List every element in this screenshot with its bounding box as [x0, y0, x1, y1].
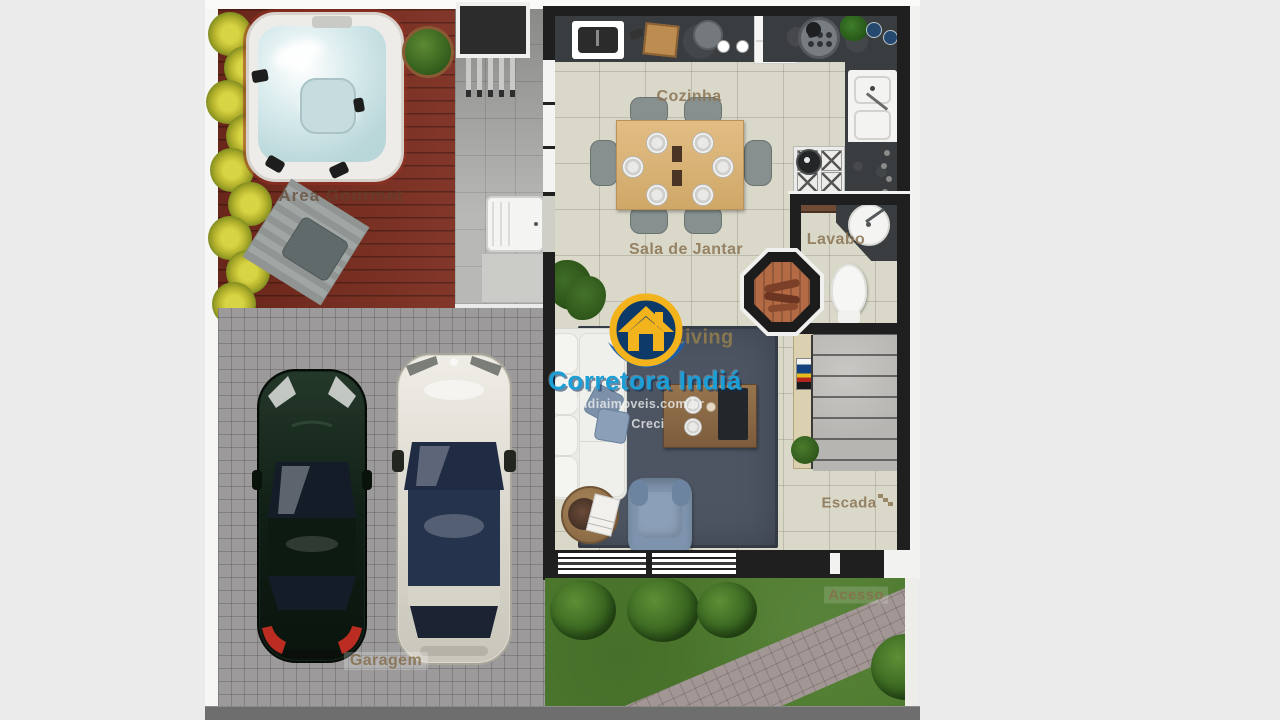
toilet-base — [838, 310, 860, 323]
toilet — [831, 264, 867, 316]
place-setting — [622, 156, 644, 178]
car-dark-svg — [252, 366, 372, 666]
pebble-decor — [884, 150, 890, 156]
table-runner-item — [672, 170, 682, 186]
window-left — [543, 60, 555, 192]
window-bottom — [652, 553, 736, 574]
car-dark — [252, 366, 372, 671]
armchair-wing — [630, 480, 648, 506]
watermark-website: indiaimoveis.com.br — [576, 397, 704, 411]
stove-burner — [797, 172, 818, 193]
floorplan-canvas: Área Gourmet — [0, 0, 1280, 720]
lavabo-label: Lavabo — [807, 231, 865, 249]
counter-plant — [840, 15, 868, 41]
place-setting — [646, 132, 668, 154]
counter-bowl — [866, 22, 882, 38]
decor-kettle — [806, 22, 821, 37]
lavabo-wall-top — [790, 194, 910, 205]
bush — [627, 578, 699, 642]
wall-right — [897, 6, 910, 580]
stove-pot-lid — [804, 157, 810, 163]
bush — [550, 580, 616, 640]
street-strip — [205, 706, 920, 720]
place-setting — [692, 184, 714, 206]
grill — [456, 2, 530, 58]
lavabo-drain — [866, 222, 871, 227]
bush — [697, 582, 757, 638]
patio-door-panel — [492, 202, 512, 246]
stair-plant — [791, 436, 819, 464]
hot-tub-seat — [300, 78, 356, 134]
potted-plant — [402, 26, 454, 78]
kitchen-label: Cozinha — [656, 88, 721, 106]
decor-plate-rack — [798, 17, 840, 59]
window-bottom — [558, 553, 646, 574]
place-setting — [712, 156, 734, 178]
place-setting — [646, 184, 668, 206]
dining-label: Sala de Jantar — [629, 241, 743, 259]
stove-burner — [821, 150, 842, 171]
wall-right-trim — [910, 6, 920, 580]
wall-art — [796, 358, 812, 390]
dining-chair — [630, 206, 668, 234]
sofa-pillow — [593, 407, 630, 444]
logo-house-icon — [600, 290, 692, 374]
door-frame-bottom — [830, 553, 840, 574]
watermark-license: Creci — [631, 417, 664, 431]
gourmet-label: Área Gourmet — [278, 186, 403, 206]
garage-label: Garagem — [344, 652, 428, 670]
staircase — [813, 333, 897, 471]
car-light — [392, 350, 516, 673]
door-landing — [482, 254, 544, 302]
wall-top — [545, 6, 910, 16]
place-setting — [692, 132, 714, 154]
dining-chair — [744, 140, 772, 186]
stairs-label: Escada — [822, 495, 877, 512]
tub-control-panel — [312, 16, 352, 28]
watermark-brand: Corretora Indiá — [548, 366, 742, 397]
fence-right-lower — [905, 578, 918, 706]
stairs-icon — [878, 494, 883, 498]
car-light-svg — [392, 350, 516, 668]
grill-skewers — [466, 58, 520, 90]
access-label: Acesso — [824, 587, 888, 604]
coffee-table-cup — [706, 402, 716, 412]
stove-knob — [717, 40, 730, 53]
stove-knob — [736, 40, 749, 53]
armchair-wing — [672, 480, 690, 506]
coffee-table-plate — [684, 418, 702, 436]
corner-post — [884, 550, 910, 578]
grill-skewer-tips — [466, 90, 520, 97]
door-handle — [534, 222, 538, 226]
kitchen-faucet — [596, 30, 599, 46]
cutting-board — [642, 22, 679, 57]
right-sink-basin — [854, 110, 891, 140]
stove-burner — [821, 172, 842, 193]
doorway-left — [543, 196, 555, 252]
counter-bowl — [883, 30, 898, 45]
sink-dot — [870, 86, 875, 91]
dining-chair — [684, 206, 722, 234]
dining-chair — [590, 140, 618, 186]
table-runner-item — [672, 146, 682, 162]
